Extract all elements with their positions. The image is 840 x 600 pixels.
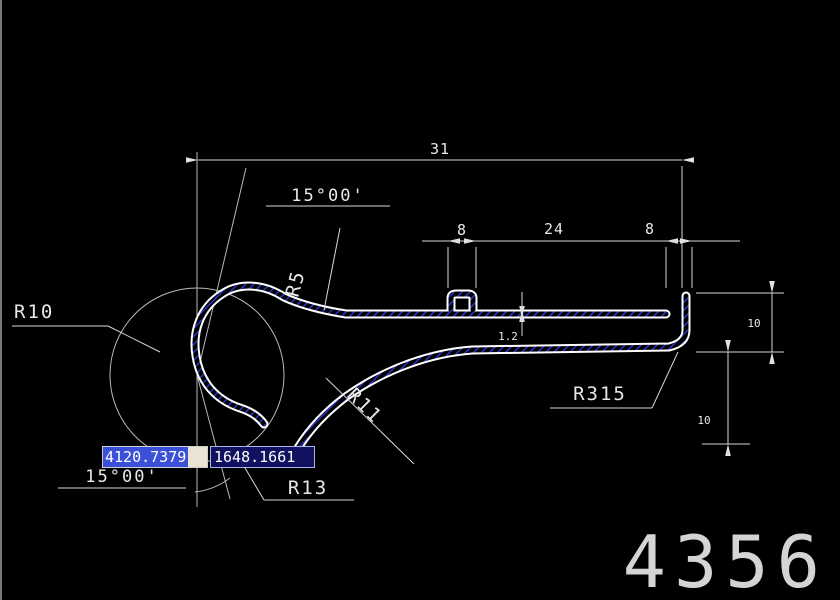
dim-total-width-label: 31 <box>430 140 450 158</box>
radius-r315-label: R315 <box>573 383 627 405</box>
dim-height-upper-label: 10 <box>747 317 760 330</box>
angle-top-label: 15°00' <box>291 186 364 206</box>
radius-r13-label: R13 <box>288 477 328 499</box>
angle-bottom-label: 15°00' <box>85 467 158 487</box>
radius-r10-label: R10 <box>14 301 54 323</box>
sheet-number-label: 4356 <box>623 526 828 598</box>
dim-height-lower-label: 10 <box>697 414 710 427</box>
dynamic-input-x[interactable]: 4120.7379 <box>102 446 208 468</box>
dim-wall-thickness-label: 1.2 <box>498 330 518 343</box>
dim-middle-width-label: 24 <box>544 220 564 238</box>
drawing-canvas[interactable]: 31 15°00' 8 24 8 10 10 1.2 R10 R5 R11 R1… <box>0 0 840 600</box>
angle-line-top <box>197 168 246 375</box>
dynamic-input-y[interactable]: 1648.1661 <box>210 446 315 468</box>
dim-lip-width-label: 8 <box>645 220 655 238</box>
radius-r5-label: R5 <box>282 268 310 300</box>
profile-bottom-wall <box>298 296 686 448</box>
dynamic-input-y-value[interactable]: 1648.1661 <box>214 448 295 466</box>
dynamic-input-x-value[interactable]: 4120.7379 <box>103 447 188 467</box>
dim-tab-width-label: 8 <box>457 221 467 239</box>
cad-drawing: 31 15°00' 8 24 8 10 10 1.2 R10 R5 R11 R1… <box>2 0 840 600</box>
